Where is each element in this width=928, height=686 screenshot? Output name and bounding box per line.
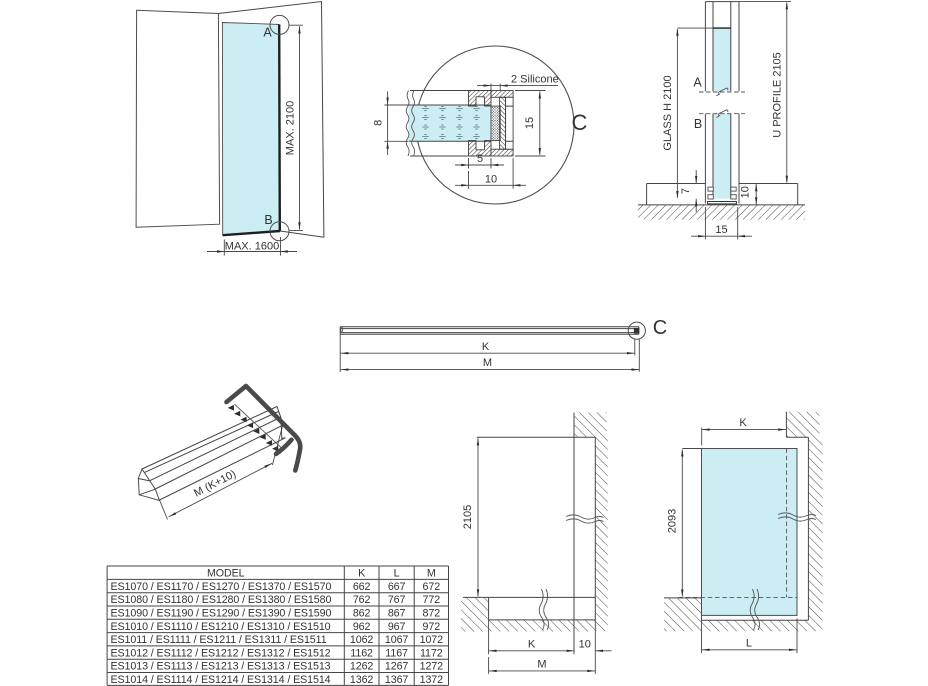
- svg-text:5: 5: [477, 153, 483, 165]
- svg-text:772: 772: [423, 594, 441, 606]
- svg-text:K: K: [739, 417, 747, 429]
- svg-text:1067: 1067: [385, 634, 409, 646]
- svg-text:ES1080 / ES1180 / ES1280 / ES1: ES1080 / ES1180 / ES1280 / ES1380 / ES15…: [111, 594, 332, 606]
- svg-text:L: L: [746, 637, 752, 649]
- svg-text:1367: 1367: [385, 674, 409, 686]
- svg-text:1172: 1172: [420, 647, 443, 659]
- svg-text:ES1013 / ES1113 / ES1213 / ES1: ES1013 / ES1113 / ES1213 / ES1313 / ES15…: [111, 661, 331, 673]
- svg-text:8: 8: [373, 120, 385, 126]
- svg-text:B: B: [264, 213, 272, 227]
- svg-text:862: 862: [353, 608, 371, 620]
- svg-text:ES1012 / ES1112 / ES1212 / ES1: ES1012 / ES1112 / ES1212 / ES1312 / ES15…: [111, 647, 331, 659]
- svg-text:1272: 1272: [420, 661, 444, 673]
- svg-text:K: K: [358, 568, 366, 580]
- svg-text:2105: 2105: [462, 505, 474, 529]
- svg-text:GLASS H 2100: GLASS H 2100: [662, 75, 674, 150]
- svg-text:MAX. 2100: MAX. 2100: [285, 101, 297, 155]
- svg-text:1072: 1072: [420, 634, 444, 646]
- svg-text:MODEL: MODEL: [207, 568, 245, 580]
- svg-text:A: A: [263, 26, 272, 40]
- svg-text:972: 972: [423, 621, 441, 633]
- svg-text:1162: 1162: [350, 647, 373, 659]
- svg-text:ES1014 / ES1114 / ES1214 / ES1: ES1014 / ES1114 / ES1214 / ES1314 / ES15…: [111, 674, 331, 686]
- svg-text:1267: 1267: [385, 661, 409, 673]
- svg-text:10: 10: [740, 186, 752, 198]
- svg-text:ES1011 / ES1111 / ES1211 / ES1: ES1011 / ES1111 / ES1211 / ES1311 / ES15…: [111, 634, 327, 646]
- svg-text:ES1010 / ES1110 / ES1210 / ES1: ES1010 / ES1110 / ES1210 / ES1310 / ES15…: [111, 621, 331, 633]
- svg-text:767: 767: [388, 594, 406, 606]
- svg-text:1262: 1262: [350, 661, 374, 673]
- svg-text:2 Silicone: 2 Silicone: [511, 74, 559, 86]
- svg-text:K: K: [482, 341, 490, 353]
- svg-text:B: B: [694, 117, 702, 131]
- svg-text:10: 10: [485, 173, 497, 185]
- svg-text:U PROFILE 2105: U PROFILE 2105: [771, 52, 783, 138]
- svg-text:1362: 1362: [350, 674, 374, 686]
- svg-text:M: M: [427, 568, 436, 580]
- svg-text:10: 10: [579, 638, 591, 650]
- svg-text:1372: 1372: [420, 674, 444, 686]
- svg-text:662: 662: [353, 581, 371, 593]
- svg-text:A: A: [693, 76, 702, 90]
- svg-text:15: 15: [715, 224, 727, 236]
- svg-text:1167: 1167: [385, 647, 408, 659]
- svg-text:C: C: [653, 317, 667, 339]
- svg-text:ES1090 / ES1190 / ES1290 / ES1: ES1090 / ES1190 / ES1290 / ES1390 / ES15…: [111, 608, 332, 620]
- svg-text:667: 667: [388, 581, 406, 593]
- svg-text:L: L: [394, 568, 400, 580]
- svg-text:762: 762: [353, 594, 371, 606]
- svg-text:672: 672: [423, 581, 441, 593]
- svg-text:872: 872: [423, 608, 441, 620]
- svg-text:1062: 1062: [350, 634, 374, 646]
- svg-text:M: M: [537, 659, 546, 671]
- svg-text:967: 967: [388, 621, 406, 633]
- svg-text:M: M: [483, 357, 492, 369]
- svg-text:ES1070 / ES1170 / ES1270 / ES1: ES1070 / ES1170 / ES1270 / ES1370 / ES15…: [111, 581, 332, 593]
- svg-text:962: 962: [353, 621, 371, 633]
- svg-text:15: 15: [524, 117, 536, 129]
- svg-text:2093: 2093: [666, 509, 678, 533]
- svg-text:C: C: [572, 110, 588, 135]
- svg-text:MAX. 1600: MAX. 1600: [225, 241, 279, 253]
- svg-text:K: K: [528, 638, 536, 650]
- svg-text:867: 867: [388, 608, 406, 620]
- svg-text:7: 7: [680, 188, 692, 194]
